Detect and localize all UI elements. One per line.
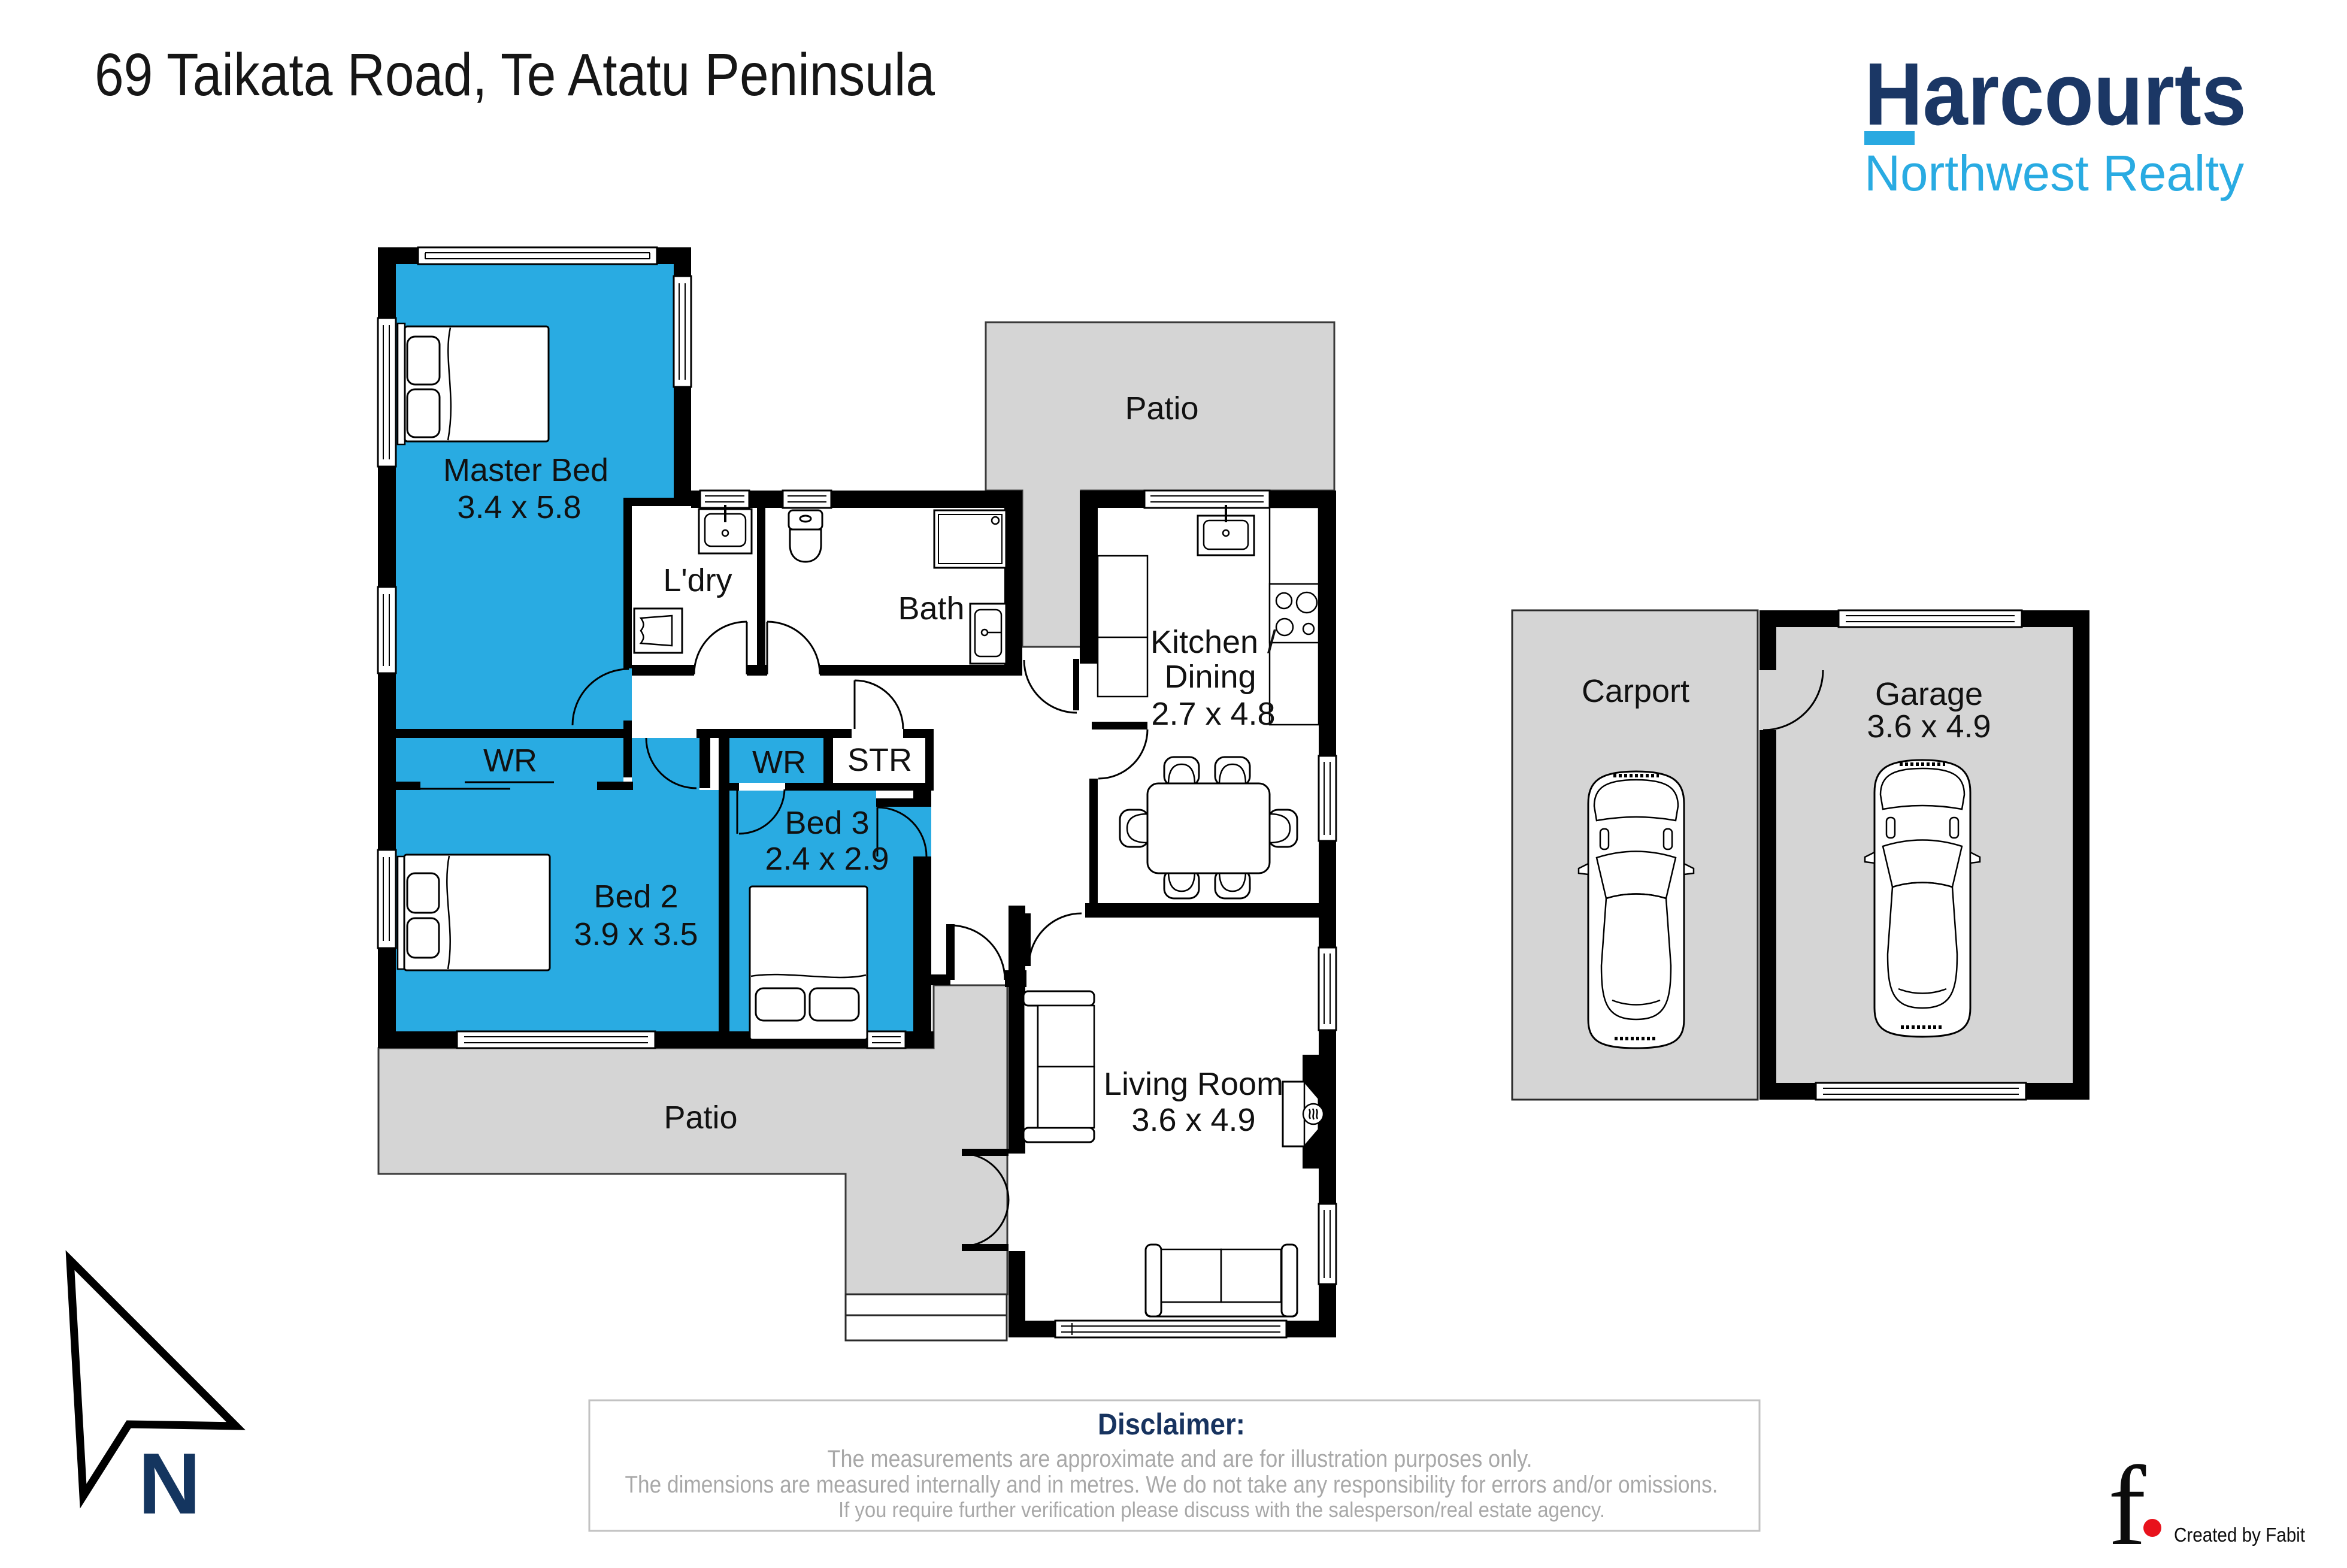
- svg-text:Patio: Patio: [1125, 391, 1198, 426]
- svg-text:Harcourts: Harcourts: [1864, 45, 2246, 144]
- svg-text:The measurements are approxima: The measurements are approximate and are…: [828, 1446, 1533, 1472]
- svg-text:Dining: Dining: [1164, 659, 1256, 695]
- svg-text:Kitchen /: Kitchen /: [1150, 624, 1276, 660]
- svg-text:3.6 x 4.9: 3.6 x 4.9: [1131, 1102, 1255, 1138]
- svg-text:WR: WR: [483, 743, 537, 779]
- svg-text:The dimensions are measured in: The dimensions are measured internally a…: [625, 1472, 1718, 1498]
- svg-text:Northwest Realty: Northwest Realty: [1864, 145, 2244, 201]
- svg-text:L'dry: L'dry: [663, 562, 732, 598]
- svg-text:Bed 3: Bed 3: [785, 805, 869, 841]
- svg-text:STR: STR: [847, 742, 912, 778]
- svg-text:f: f: [2108, 1443, 2146, 1568]
- svg-text:Created by Fabit: Created by Fabit: [2174, 1524, 2305, 1546]
- svg-text:Bath: Bath: [898, 591, 964, 626]
- svg-text:3.9 x 3.5: 3.9 x 3.5: [574, 916, 698, 952]
- svg-text:Disclaimer:: Disclaimer:: [1098, 1407, 1245, 1441]
- svg-text:Patio: Patio: [664, 1100, 737, 1136]
- svg-text:69 Taikata Road, Te Atatu Peni: 69 Taikata Road, Te Atatu Peninsula: [95, 41, 935, 108]
- svg-text:If you require further verific: If you require further verification plea…: [838, 1497, 1605, 1522]
- svg-text:Living Room: Living Room: [1104, 1066, 1283, 1102]
- svg-text:Garage: Garage: [1875, 676, 1983, 712]
- svg-text:3.4 x 5.8: 3.4 x 5.8: [457, 489, 581, 525]
- svg-text:Carport: Carport: [1582, 673, 1689, 709]
- svg-text:Master Bed: Master Bed: [443, 452, 608, 488]
- svg-text:3.6 x 4.9: 3.6 x 4.9: [1867, 709, 1991, 744]
- svg-text:Bed 2: Bed 2: [593, 879, 678, 915]
- svg-text:2.7 x 4.8: 2.7 x 4.8: [1151, 696, 1275, 732]
- svg-text:2.4 x 2.9: 2.4 x 2.9: [765, 841, 889, 877]
- svg-text:N: N: [138, 1435, 201, 1532]
- svg-text:WR: WR: [752, 744, 806, 780]
